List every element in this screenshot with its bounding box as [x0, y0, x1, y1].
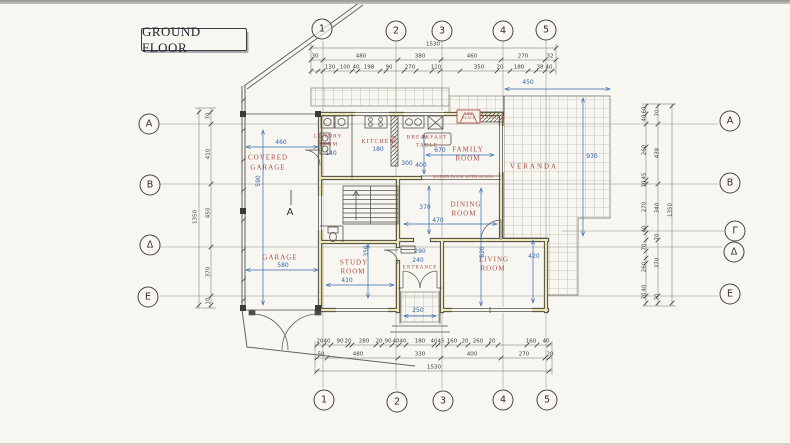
- dim-label: 100: [340, 65, 351, 71]
- dim-label: 40: [543, 339, 550, 345]
- grid-marker-5: 5: [537, 390, 558, 411]
- dim-label: 38: [537, 65, 544, 71]
- floorplan-page: GROUND FLOOR 1234512345ABΔEABΓΔECOVEREDG…: [0, 0, 790, 445]
- dim-label: 70: [642, 181, 648, 188]
- dim-label: 160: [526, 339, 537, 345]
- dim-label: 30: [312, 54, 319, 60]
- grid-marker-5: 5: [536, 20, 557, 41]
- dim-label: 40: [642, 115, 648, 122]
- dim-label: 260: [642, 262, 648, 273]
- dim-label: 460: [467, 54, 478, 60]
- dim-label: 40: [393, 339, 400, 345]
- dim-label: 40: [400, 339, 407, 345]
- grid-marker-3: 3: [433, 391, 454, 412]
- dim-label: 40: [546, 65, 553, 71]
- dim-label-blue: 930: [586, 154, 597, 160]
- grid-marker-4: 4: [493, 21, 514, 42]
- annotation-label: PLACE: [462, 117, 476, 121]
- section-marker: A: [287, 208, 294, 218]
- dim-label-blue: 410: [341, 278, 352, 284]
- dim-label: 70: [655, 294, 661, 301]
- dim-label: 450: [206, 208, 212, 219]
- room-label: COVERED: [248, 155, 288, 162]
- grid-marker-E: E: [720, 284, 741, 305]
- room-label: ROOM: [340, 269, 365, 276]
- dim-label: 400: [467, 352, 478, 358]
- room-label: LUNDRY: [314, 134, 343, 140]
- dim-label: 270: [518, 54, 529, 60]
- grid-marker-2: 2: [387, 392, 408, 413]
- dim-label: 40: [431, 339, 438, 345]
- room-label: ROOM: [318, 142, 339, 148]
- drawing-title: GROUND FLOOR: [142, 24, 246, 56]
- dim-label: 40: [353, 65, 360, 71]
- dim-label-blue: 820: [480, 246, 486, 257]
- dim-label: 480: [353, 352, 364, 358]
- room-label: DINING: [451, 202, 482, 209]
- dim-label: 370: [206, 267, 212, 278]
- grid-marker-Δ: Δ: [724, 242, 745, 263]
- dim-label: 1530: [426, 42, 440, 48]
- dim-label: 60: [642, 107, 648, 114]
- grid-marker-B: B: [140, 175, 161, 196]
- dim-label: 270: [519, 352, 530, 358]
- room-label: ROOM: [455, 156, 480, 163]
- dim-label: 45: [642, 173, 648, 180]
- annotation-label: SLIDED DOOR WITH GLASS: [433, 175, 494, 179]
- dim-label: 480: [356, 54, 367, 60]
- dim-label: 20: [345, 339, 352, 345]
- dim-label: 180: [514, 65, 525, 71]
- dim-label-blue: 460: [275, 140, 286, 146]
- dim-label: 20: [317, 339, 324, 345]
- dim-label-blue: 670: [434, 148, 445, 154]
- staircase: [343, 186, 398, 224]
- dim-label: 330: [415, 352, 426, 358]
- dim-label: 1350: [193, 210, 199, 224]
- dim-label: 90: [386, 65, 393, 71]
- room-label: GARAGE: [262, 255, 297, 262]
- dim-label-blue: 470: [432, 218, 443, 224]
- dim-label: 70: [655, 110, 661, 117]
- grid-marker-Δ: Δ: [140, 235, 161, 256]
- dim-label-blue: 180: [372, 147, 383, 153]
- dim-label: 350: [474, 65, 485, 71]
- room-label: GARAGE: [250, 165, 285, 172]
- dim-label: 20: [376, 339, 383, 345]
- drawing-title-box: GROUND FLOOR: [141, 28, 247, 51]
- dim-label: 90: [337, 339, 344, 345]
- dim-label: 130: [325, 65, 336, 71]
- dim-label-blue: 420: [528, 254, 539, 260]
- dim-label-blue: 580: [277, 263, 288, 269]
- dim-label: 1350: [668, 203, 674, 217]
- room-label: ROOM: [451, 211, 476, 218]
- room-label: STUDY: [340, 260, 368, 267]
- grid-marker-1: 1: [314, 390, 335, 411]
- annotation-label: TV STATION: [479, 115, 506, 119]
- dim-label: 270: [405, 65, 416, 71]
- dim-label: 70: [655, 234, 661, 241]
- dim-label: 70: [642, 244, 648, 251]
- dim-label-blue: 370: [419, 205, 430, 211]
- dim-label: 20: [462, 339, 469, 345]
- room-label: ROOM: [480, 266, 505, 273]
- dim-label: 438: [655, 148, 661, 159]
- dim-label-blue: 590: [256, 175, 262, 186]
- grid-marker-4: 4: [493, 390, 514, 411]
- dim-label: 45: [438, 339, 445, 345]
- grid-marker-1: 1: [312, 19, 333, 40]
- grid-marker-A: A: [720, 111, 741, 132]
- dim-label-blue: 240: [412, 258, 423, 264]
- dim-label: 10: [206, 298, 212, 305]
- dim-label: 260: [642, 145, 648, 156]
- room-label: ENTRANCE: [403, 266, 438, 271]
- dim-label: 260: [473, 339, 484, 345]
- dim-label: 198: [364, 65, 375, 71]
- dim-label: 70: [206, 113, 212, 120]
- grid-marker-B: B: [720, 173, 741, 194]
- dim-label: 280: [359, 339, 370, 345]
- room-label: BREAKFAST: [407, 135, 448, 141]
- dim-label: 180: [415, 339, 426, 345]
- dim-label: 160: [447, 339, 458, 345]
- dim-label-blue: 290: [414, 249, 425, 255]
- gate-swings: [249, 310, 321, 350]
- dim-label: 380: [415, 54, 426, 60]
- plan-linework: [0, 0, 790, 445]
- dim-label-blue: 350: [364, 245, 370, 256]
- dim-label: 410: [206, 149, 212, 160]
- dim-label: 20: [497, 65, 504, 71]
- dim-label: 20: [547, 352, 554, 358]
- room-label: VERANDA: [510, 164, 558, 171]
- dim-label: 32: [547, 54, 554, 60]
- grid-marker-2: 2: [386, 21, 407, 42]
- dim-label: 90: [385, 339, 392, 345]
- dim-label: 270: [642, 202, 648, 213]
- dim-label: 50: [318, 352, 325, 358]
- dim-label: 370: [655, 258, 661, 269]
- dim-label-blue: 300: [401, 161, 412, 167]
- grid-marker-Γ: Γ: [725, 221, 746, 242]
- grid-marker-E: E: [138, 287, 159, 308]
- dim-label: 70: [642, 293, 648, 300]
- dim-label-blue: 140: [325, 151, 336, 157]
- dim-label: 40: [324, 339, 331, 345]
- dim-label: 20: [489, 339, 496, 345]
- room-label: FAMILY: [452, 147, 484, 154]
- grid-marker-3: 3: [432, 21, 453, 42]
- scan-edge-top: [0, 0, 790, 4]
- dim-label-blue: 400: [415, 163, 426, 169]
- dim-label: 340: [655, 203, 661, 214]
- grid-marker-A: A: [139, 114, 160, 135]
- dim-label: 110: [431, 65, 442, 71]
- dim-label: 40: [642, 226, 648, 233]
- dim-label: 40: [642, 285, 648, 292]
- dim-label-blue: 250: [412, 308, 423, 314]
- dim-label: 1530: [427, 365, 441, 371]
- dim-label-blue: 450: [522, 80, 533, 86]
- room-label: KITCHEN: [361, 139, 394, 145]
- room-label: BAR: [392, 134, 397, 147]
